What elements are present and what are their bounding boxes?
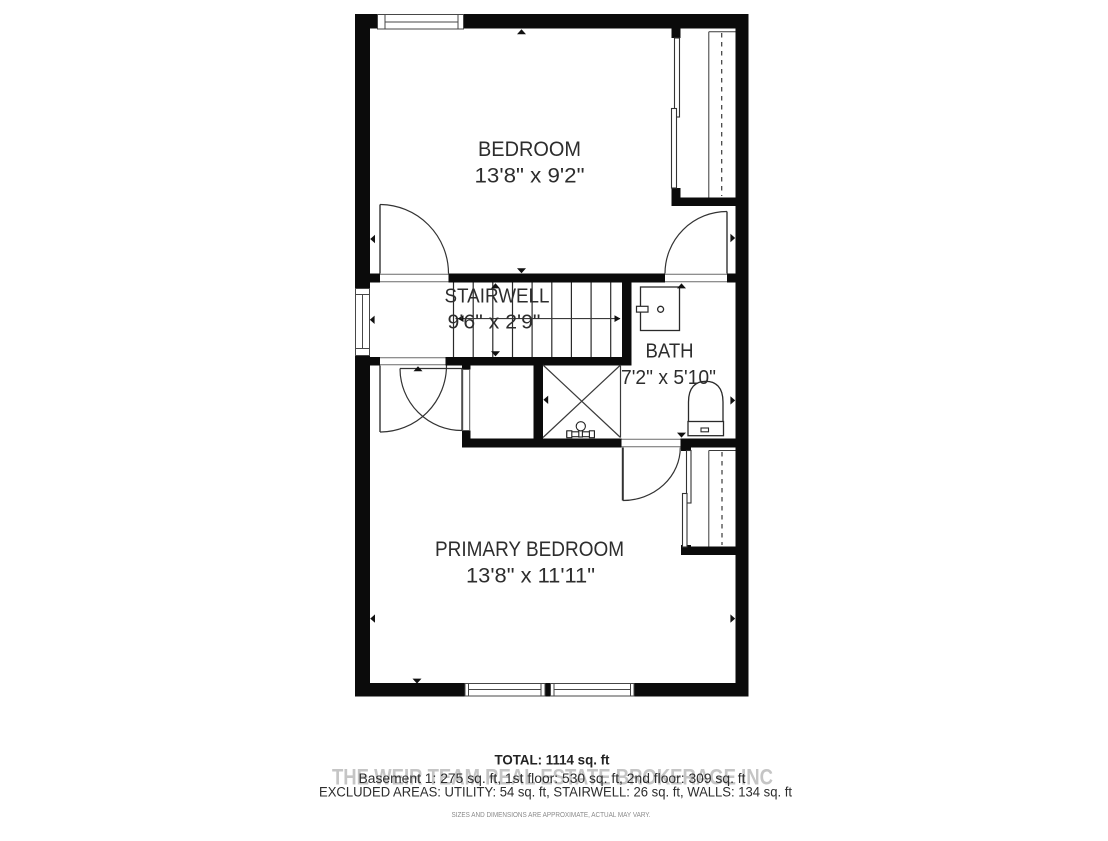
svg-text:9'6" x 2'9": 9'6" x 2'9": [448, 311, 541, 334]
svg-text:EXCLUDED AREAS: UTILITY: 54 sq: EXCLUDED AREAS: UTILITY: 54 sq. ft, STAI…: [319, 785, 792, 801]
svg-text:7'2" x 5'10": 7'2" x 5'10": [621, 366, 716, 389]
svg-text:TOTAL: 1114 sq. ft: TOTAL: 1114 sq. ft: [495, 753, 610, 769]
svg-text:PRIMARY BEDROOM: PRIMARY BEDROOM: [435, 538, 624, 561]
svg-text:STAIRWELL: STAIRWELL: [445, 285, 550, 308]
svg-text:BATH: BATH: [646, 340, 694, 363]
svg-text:SIZES AND DIMENSIONS ARE APPRO: SIZES AND DIMENSIONS ARE APPROXIMATE, AC…: [452, 810, 651, 819]
svg-text:13'8" x 11'11": 13'8" x 11'11": [466, 565, 595, 588]
svg-text:BEDROOM: BEDROOM: [478, 138, 581, 161]
svg-text:13'8" x 9'2": 13'8" x 9'2": [475, 165, 585, 188]
